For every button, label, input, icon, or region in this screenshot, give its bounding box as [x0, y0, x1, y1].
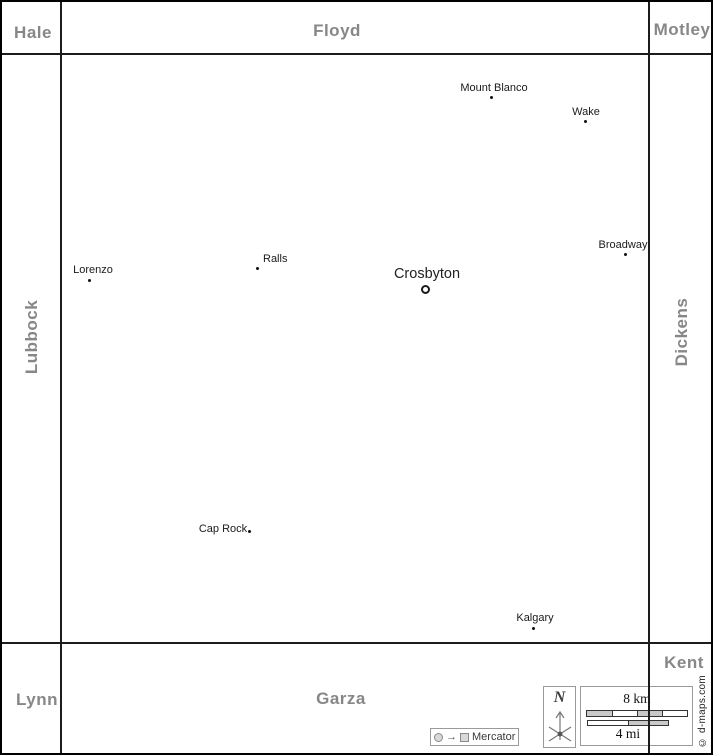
place-dot-lorenzo — [88, 279, 91, 282]
place-label-lorenzo: Lorenzo — [73, 264, 113, 276]
county-label-lynn: Lynn — [16, 690, 58, 710]
scale-segment — [662, 711, 687, 716]
county-label-kent: Kent — [664, 653, 704, 673]
scale-segment — [587, 711, 612, 716]
map-canvas: N 8 km 4 mi → Mercator Hale — [0, 0, 713, 755]
county-border-bottom — [2, 642, 713, 644]
place-label-cap-rock: Cap Rock — [199, 523, 247, 535]
county-border-left — [60, 2, 62, 755]
scale-mi-label: 4 mi — [616, 726, 640, 742]
projected-square-icon — [460, 733, 469, 742]
scale-km-label: 8 km — [623, 691, 650, 707]
projection-arrow-icon: → — [446, 732, 457, 743]
globe-circle-icon — [434, 733, 443, 742]
place-label-crosbyton: Crosbyton — [394, 266, 460, 282]
place-dot-cap-rock — [248, 530, 251, 533]
county-label-lubbock: Lubbock — [22, 300, 42, 374]
projection-name: Mercator — [472, 731, 515, 743]
place-dot-ralls — [256, 267, 259, 270]
county-label-hale: Hale — [14, 23, 52, 43]
county-label-dickens: Dickens — [672, 298, 692, 367]
place-dot-wake — [584, 120, 587, 123]
place-label-ralls: Ralls — [263, 253, 287, 265]
place-label-wake: Wake — [572, 106, 600, 118]
place-label-broadway: Broadway — [599, 239, 648, 251]
projection-legend-box: → Mercator — [430, 728, 519, 746]
copyright-text: © d-maps.com — [697, 675, 708, 747]
place-dot-kalgary — [532, 627, 535, 630]
county-border-right — [648, 2, 650, 755]
place-dot-mount-blanco — [490, 96, 493, 99]
county-border-top — [2, 53, 713, 55]
north-label: N — [544, 690, 575, 706]
scale-bar-box: 8 km 4 mi — [580, 686, 693, 746]
north-arrow-box: N — [543, 686, 576, 748]
county-label-floyd: Floyd — [313, 21, 361, 41]
scale-segment — [612, 711, 637, 716]
place-label-mount-blanco: Mount Blanco — [460, 82, 527, 94]
county-seat-marker-crosbyton — [421, 285, 430, 294]
county-label-garza: Garza — [316, 689, 366, 709]
place-dot-broadway — [624, 253, 627, 256]
place-label-kalgary: Kalgary — [516, 612, 553, 624]
compass-rose-icon — [547, 706, 573, 744]
scale-segment — [588, 721, 628, 725]
county-label-motley: Motley — [654, 20, 711, 40]
scale-km-bar — [586, 710, 688, 717]
